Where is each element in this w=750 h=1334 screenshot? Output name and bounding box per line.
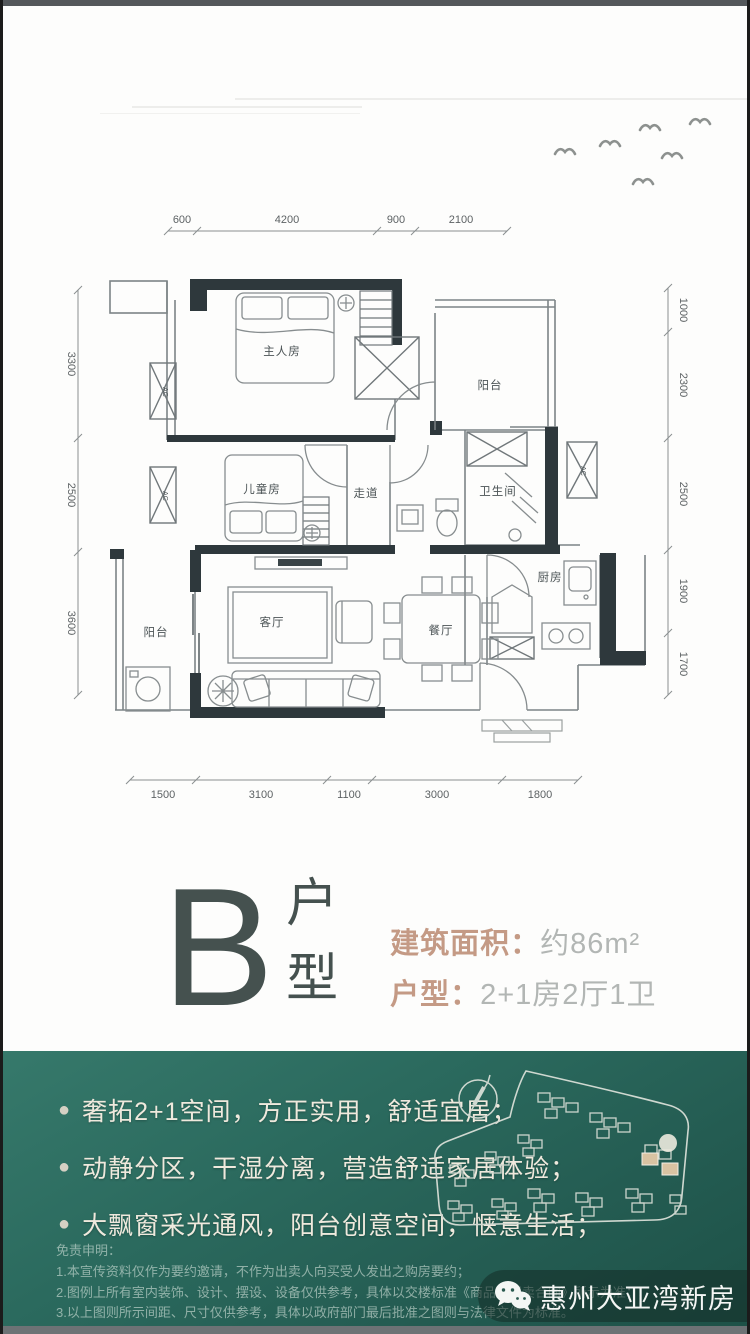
dim-bottom-1: 1500 xyxy=(151,789,175,801)
wechat-icon xyxy=(494,1280,532,1312)
compass-icon xyxy=(459,1075,497,1118)
room-label-kids: 儿童房 xyxy=(243,482,281,496)
dim-bottom-5: 1800 xyxy=(528,789,552,801)
dim-top-4: 2100 xyxy=(449,214,473,226)
entry-stoop xyxy=(482,720,562,742)
master-bed xyxy=(236,293,354,383)
dim-right-5: 1700 xyxy=(677,652,689,676)
room-label-living: 客厅 xyxy=(260,615,285,629)
ac-label: AC xyxy=(161,387,168,397)
kids-bed xyxy=(225,455,320,541)
wechat-badge: 惠州大亚湾新房 xyxy=(478,1270,750,1322)
dim-top-1: 600 xyxy=(173,214,191,226)
living-furniture xyxy=(208,557,380,707)
badge-label: 惠州大亚湾新房 xyxy=(540,1277,736,1316)
dim-right-3: 2500 xyxy=(677,482,689,506)
room-label-corridor: 走道 xyxy=(354,486,379,500)
watermark-line xyxy=(235,98,750,100)
dimension-lines xyxy=(74,227,672,784)
room-labels: 主人房 阳台 儿童房 走道 卫生间 厨房 餐厅 客厅 阳台 xyxy=(144,345,563,639)
room-label-dining: 餐厅 xyxy=(429,623,454,637)
dim-left-1: 3300 xyxy=(65,352,77,376)
watermark-line xyxy=(132,106,362,108)
sliding-door xyxy=(193,594,199,673)
layout-row: 户型： 2+1房2厅1卫 xyxy=(390,971,656,1013)
layout-value: 2+1房2厅1卫 xyxy=(480,971,656,1013)
bath-fixtures xyxy=(397,497,538,541)
ac-label: AC xyxy=(161,491,168,501)
bullet-icon: ● xyxy=(58,1214,70,1234)
unit-letter: B xyxy=(162,879,272,1017)
dim-bottom-4: 3000 xyxy=(425,789,449,801)
balcony-washer xyxy=(126,667,170,711)
room-label-balcony-left: 阳台 xyxy=(144,625,169,639)
dim-right-2: 2300 xyxy=(677,373,689,397)
bullet-icon: ● xyxy=(58,1157,70,1177)
site-plan-sketch xyxy=(430,1057,745,1269)
left-frame-edge xyxy=(0,0,3,1334)
site-boundary xyxy=(435,1071,688,1225)
unit-info: 建筑面积： 约86m² 户型： 2+1房2厅1卫 xyxy=(390,920,656,1013)
floor-plan: 600 4200 900 2100 1500 3100 1100 3000 18… xyxy=(50,205,700,810)
bullet-icon: ● xyxy=(58,1100,70,1120)
dim-right-1: 1000 xyxy=(677,298,689,322)
room-label-master: 主人房 xyxy=(263,345,301,358)
dim-bottom-2: 3100 xyxy=(249,789,273,801)
top-border-bar xyxy=(0,0,750,6)
watermark-line xyxy=(100,113,360,114)
disclaimer-heading: 免责申明： xyxy=(56,1241,656,1262)
bird-icon xyxy=(555,119,710,184)
layout-label: 户型： xyxy=(390,971,480,1013)
flyer-page: 600 4200 900 2100 1500 3100 1100 3000 18… xyxy=(0,0,750,1334)
dim-top-3: 900 xyxy=(387,214,405,226)
dim-bottom-3: 1100 xyxy=(337,789,361,801)
area-label: 建筑面积： xyxy=(390,920,540,962)
highlighted-building xyxy=(642,1134,678,1175)
area-row: 建筑面积： 约86m² xyxy=(390,920,656,962)
room-label-balcony-top: 阳台 xyxy=(478,378,503,392)
unit-type-suffix: 户型 xyxy=(286,861,340,1011)
unit-title-block: B 户型 建筑面积： 约86m² 户型： 2+1房2厅1卫 xyxy=(162,872,632,1017)
dim-left-3: 3600 xyxy=(65,611,77,635)
dim-left-2: 2500 xyxy=(65,483,77,507)
dim-right-4: 1900 xyxy=(677,579,689,603)
area-value: 约86m² xyxy=(540,920,640,962)
room-label-bath: 卫生间 xyxy=(479,484,517,498)
dim-top-2: 4200 xyxy=(275,214,299,226)
room-label-kitchen: 厨房 xyxy=(538,571,563,584)
bottom-border-bar xyxy=(0,1326,750,1334)
birds-illustration xyxy=(520,108,735,208)
ac-label: AC xyxy=(579,466,586,476)
features-section: ● 奢拓2+1空间，方正实用，舒适宜居； ● 动静分区，干湿分离，营造舒适家居体… xyxy=(0,1051,750,1326)
